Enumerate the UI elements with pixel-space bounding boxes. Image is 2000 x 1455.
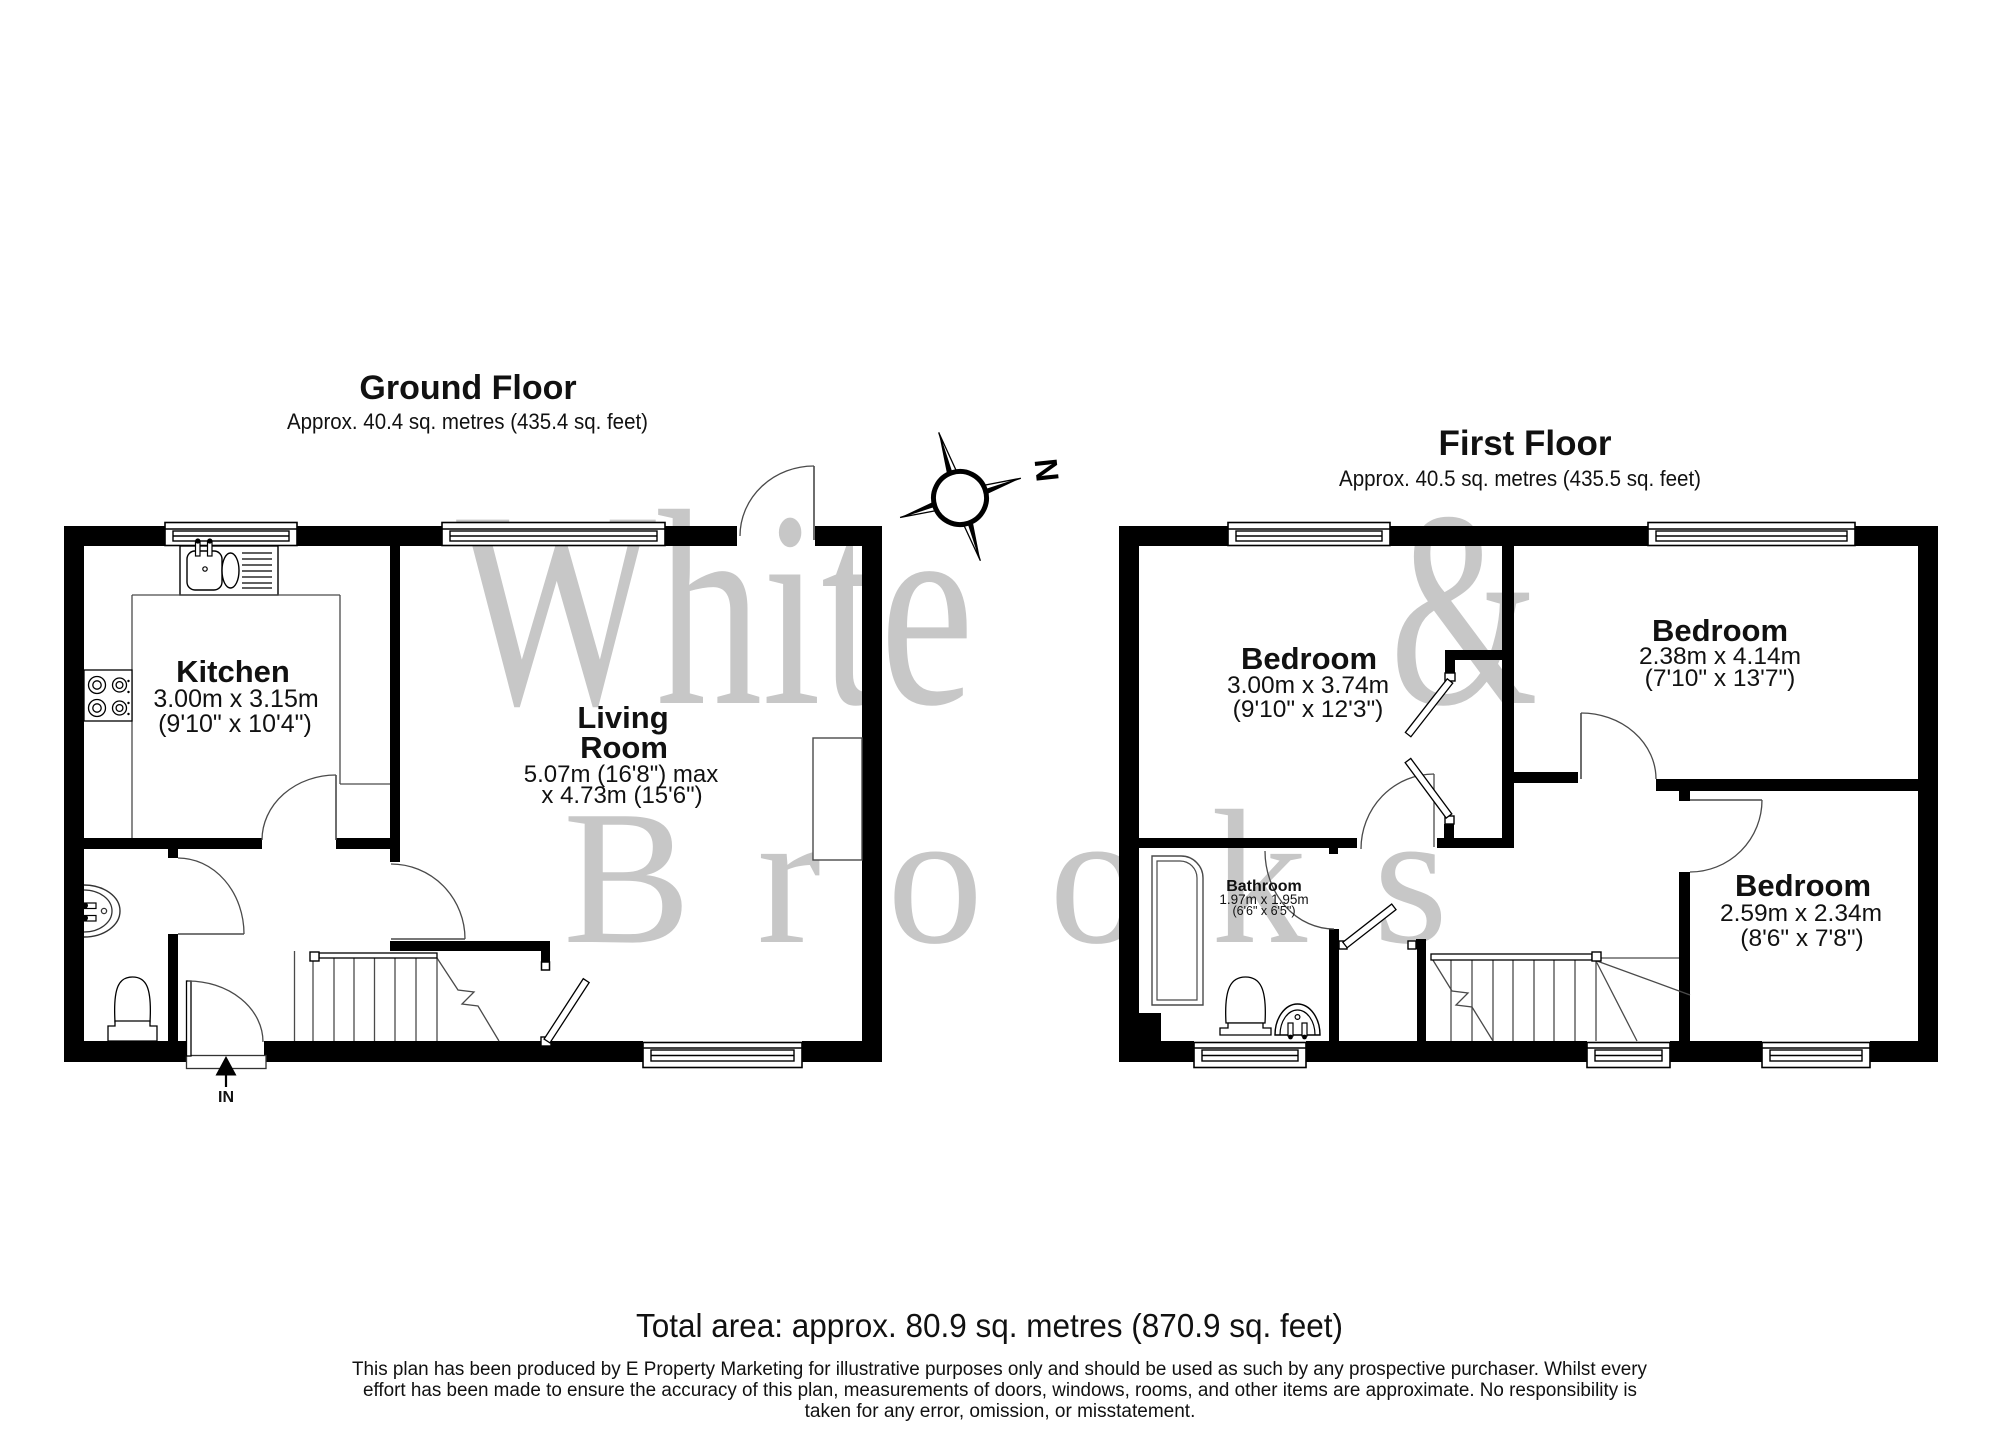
svg-text:Bedroom: Bedroom	[1241, 641, 1377, 676]
svg-text:(9'10" x 10'4"): (9'10" x 10'4")	[158, 710, 312, 738]
svg-text:White: White	[456, 453, 974, 764]
svg-text:Approx. 40.5 sq. metres (435.5: Approx. 40.5 sq. metres (435.5 sq. feet)	[1339, 466, 1701, 491]
svg-text:IN: IN	[218, 1089, 234, 1106]
svg-text:&: &	[1390, 453, 1538, 764]
svg-text:3.00m x 3.15m: 3.00m x 3.15m	[153, 685, 318, 713]
svg-text:Total area: approx. 80.9 sq. m: Total area: approx. 80.9 sq. metres (870…	[636, 1307, 1343, 1344]
svg-text:effort has been made to ensure: effort has been made to ensure the accur…	[363, 1380, 1637, 1401]
svg-text:(8'6" x 7'8"): (8'6" x 7'8")	[1740, 925, 1863, 952]
svg-text:3.00m x 3.74m: 3.00m x 3.74m	[1227, 672, 1389, 699]
svg-text:x 4.73m (15'6"): x 4.73m (15'6")	[541, 782, 702, 809]
svg-text:This plan has been produced by: This plan has been produced by E Propert…	[352, 1359, 1647, 1380]
svg-text:Room: Room	[580, 730, 668, 765]
svg-text:(6'6" x 6'5"): (6'6" x 6'5")	[1233, 904, 1296, 918]
svg-text:(9'10" x 12'3"): (9'10" x 12'3")	[1233, 696, 1384, 723]
svg-text:Ground Floor: Ground Floor	[359, 369, 576, 407]
svg-text:N: N	[1027, 457, 1065, 484]
svg-text:First Floor: First Floor	[1438, 424, 1611, 463]
svg-text:taken for any error, omission,: taken for any error, omission, or missta…	[805, 1401, 1196, 1422]
svg-text:Bedroom: Bedroom	[1735, 868, 1871, 903]
svg-text:(7'10" x 13'7"): (7'10" x 13'7")	[1645, 665, 1796, 692]
svg-text:2.59m x 2.34m: 2.59m x 2.34m	[1720, 900, 1882, 927]
svg-text:Kitchen: Kitchen	[176, 654, 290, 689]
svg-text:Approx. 40.4 sq. metres (435.4: Approx. 40.4 sq. metres (435.4 sq. feet)	[287, 409, 648, 434]
